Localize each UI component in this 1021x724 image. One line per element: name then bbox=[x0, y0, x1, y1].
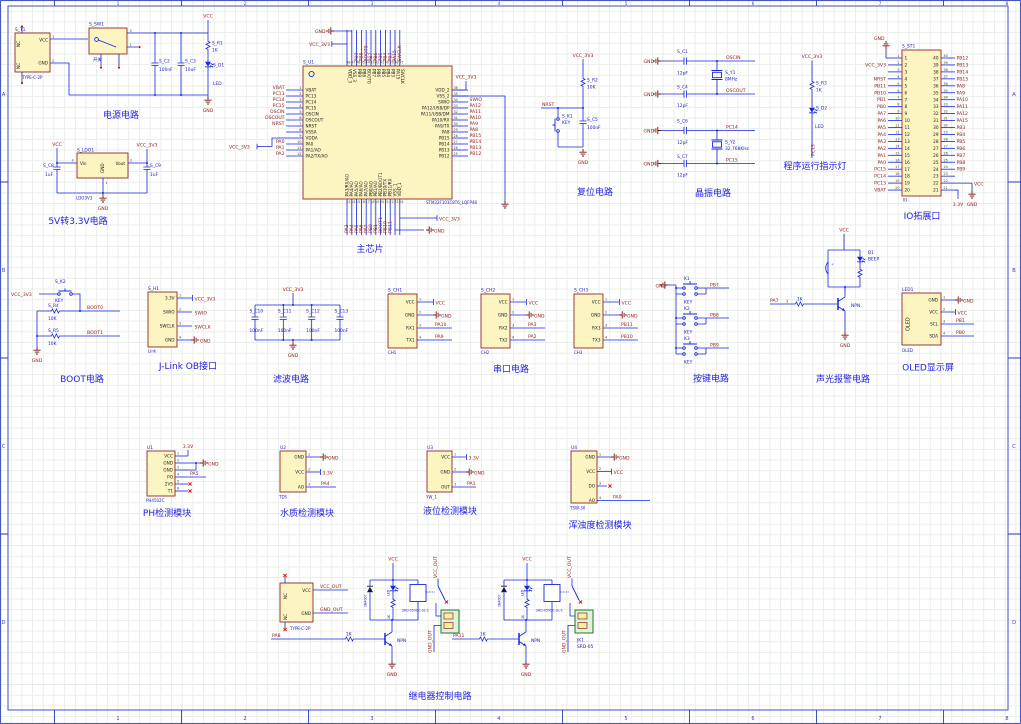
base-resistor[interactable] bbox=[794, 302, 805, 306]
crystal-row[interactable]: GND S_C1 12pF OSCIN S_Y1 8MHz GND S_C4 1… bbox=[643, 49, 755, 109]
gnd-symbol[interactable] bbox=[33, 347, 40, 354]
net-label[interactable]: OSCIN bbox=[726, 55, 741, 61]
vcc-flag[interactable]: VCC bbox=[839, 228, 849, 234]
circuit-title[interactable]: 继电器控制电路 bbox=[408, 690, 471, 702]
button-value[interactable]: KEY bbox=[684, 300, 693, 306]
resistor-designator[interactable]: S_R4 bbox=[48, 303, 59, 309]
header-right-pin[interactable]: 32 32 PA12 bbox=[933, 110, 968, 118]
led-value[interactable]: LED bbox=[521, 589, 525, 596]
capacitor-designator[interactable]: S_C9 bbox=[150, 163, 161, 169]
key-switch[interactable]: K3 KEY PB9 bbox=[675, 336, 729, 366]
net-label[interactable]: PA6 bbox=[877, 118, 886, 124]
led-designator[interactable]: S_D2 bbox=[816, 106, 827, 112]
capacitor-designator[interactable]: S_C12 bbox=[306, 309, 320, 315]
net-label[interactable]: PA8 bbox=[272, 633, 281, 639]
resistor-designator[interactable]: S_R1 bbox=[212, 41, 223, 47]
vcc-flag[interactable]: VCC bbox=[52, 142, 62, 148]
gnd-label[interactable]: GND bbox=[208, 461, 219, 467]
v33-flag[interactable]: 3.3V bbox=[183, 444, 194, 450]
net-label[interactable]: NRST bbox=[874, 76, 887, 82]
crystal-value[interactable]: 8MHz bbox=[725, 77, 738, 83]
gnd-label[interactable]: GND bbox=[32, 358, 43, 364]
led-resistor[interactable] bbox=[391, 598, 395, 609]
capacitor-designator[interactable]: S_C5 bbox=[587, 117, 598, 123]
gnd-label[interactable]: GND bbox=[967, 202, 978, 208]
capacitor-value[interactable]: 100nF bbox=[587, 125, 601, 131]
transistor-label[interactable]: NPN bbox=[397, 638, 406, 644]
gnd-symbol[interactable] bbox=[289, 342, 296, 349]
net-label[interactable]: PA1 bbox=[467, 481, 476, 487]
net-label[interactable]: PA4 bbox=[877, 132, 886, 138]
capacitor-designator[interactable]: S_C3 bbox=[185, 59, 196, 65]
net-label[interactable]: VCC_OUT bbox=[567, 556, 573, 578]
net-label[interactable]: PA9 bbox=[435, 334, 444, 340]
net-label[interactable]: PB4 bbox=[957, 132, 966, 138]
resistor-value[interactable]: 1K bbox=[387, 614, 391, 619]
connector-part[interactable]: CH3 bbox=[574, 350, 583, 355]
resistor-value[interactable]: 1K bbox=[797, 297, 803, 303]
button-designator[interactable]: K3 bbox=[684, 336, 690, 342]
vcc-flag[interactable]: VCC bbox=[529, 300, 539, 306]
resistor-value[interactable]: 10K bbox=[48, 341, 57, 347]
net-label[interactable]: PB0 bbox=[877, 104, 886, 110]
net-label[interactable]: PB8 bbox=[957, 160, 966, 166]
gnd-symbol[interactable] bbox=[99, 195, 106, 202]
base-resistor[interactable] bbox=[344, 637, 355, 641]
relay-part[interactable]: SRD-05VDC-SL-C bbox=[536, 609, 564, 613]
net-label[interactable]: SWIO bbox=[195, 310, 208, 316]
module-part[interactable]: TDS bbox=[278, 495, 288, 500]
net-label[interactable]: PC14 bbox=[874, 174, 886, 180]
header-right-pin[interactable]: 27 27 PB6 bbox=[933, 144, 965, 152]
net-label[interactable]: PB1 bbox=[877, 97, 886, 103]
alarm-led[interactable] bbox=[857, 255, 865, 264]
net-label[interactable]: PA10 bbox=[435, 322, 447, 328]
header-left-pin[interactable]: 20 20 VBAT bbox=[874, 186, 910, 194]
net-label[interactable]: PC13 bbox=[273, 91, 285, 97]
net-label[interactable]: PB11 bbox=[621, 322, 633, 328]
capacitor-designator[interactable]: S_C10 bbox=[250, 309, 264, 315]
serial-connector[interactable]: S_CH2 VCC GND RX2 TX2 1 2 3 4 VCC GND PA… bbox=[481, 288, 545, 356]
resistor-designator[interactable]: S_R2 bbox=[587, 78, 598, 84]
header-right-pin[interactable]: 23 23 bbox=[933, 172, 955, 179]
resistor-value[interactable]: 10K bbox=[48, 316, 57, 322]
gnd-symbol[interactable] bbox=[501, 201, 508, 208]
capacitor-c3[interactable] bbox=[177, 60, 184, 68]
module-pin[interactable]: 1 VCC bbox=[164, 452, 188, 459]
resistor-value[interactable]: 1K bbox=[346, 632, 352, 638]
net-label[interactable]: PB7 bbox=[710, 282, 719, 288]
mcu-designator[interactable]: S_U1 bbox=[303, 60, 314, 66]
circuit-title[interactable]: 滤波电路 bbox=[273, 373, 309, 385]
gnd-symbol[interactable] bbox=[654, 160, 661, 167]
capacitor-value[interactable]: 100nF bbox=[159, 67, 173, 73]
filter-cap[interactable]: S_C12 100nF bbox=[306, 305, 320, 340]
vcc3v3-flag[interactable]: VCC_3V3 bbox=[439, 216, 460, 222]
relay-coil[interactable] bbox=[544, 585, 560, 602]
header-right-pin[interactable]: 31 31 PA15 bbox=[933, 117, 968, 125]
header-left-pin[interactable]: 12 12 PA4 bbox=[877, 130, 910, 138]
gnd-symbol[interactable] bbox=[955, 296, 962, 303]
gnd-label[interactable]: GND bbox=[534, 313, 545, 319]
vcc-flag[interactable]: VCC bbox=[203, 14, 213, 20]
capacitor-symbol[interactable] bbox=[280, 314, 287, 322]
header-right-pin[interactable]: 36 36 PA8 bbox=[933, 82, 965, 90]
mcu-left-pin[interactable]: 9 VDDA bbox=[286, 134, 318, 141]
module-pin[interactable]: 6 T1 bbox=[167, 487, 188, 494]
net-label[interactable]: PB10 bbox=[874, 90, 886, 96]
vcc-flag[interactable]: VCC bbox=[614, 470, 624, 476]
net-label[interactable]: PC15 bbox=[273, 103, 285, 109]
connector-designator[interactable]: S_CH3 bbox=[574, 288, 588, 294]
button-value[interactable]: KEY bbox=[684, 360, 693, 366]
net-label[interactable]: PA10 bbox=[957, 97, 969, 103]
net-label[interactable]: PA5 bbox=[877, 125, 886, 131]
net-label[interactable]: SWCLK bbox=[195, 324, 212, 330]
gnd-label[interactable]: GND bbox=[643, 162, 654, 168]
buzzer-designator[interactable]: B1 bbox=[868, 250, 874, 256]
v33-flag[interactable]: 3.3V bbox=[323, 470, 334, 476]
button-value[interactable]: KEY bbox=[562, 120, 571, 126]
capacitor-value[interactable]: 1uF bbox=[150, 172, 159, 178]
net-label[interactable]: PB9 bbox=[957, 167, 966, 173]
module-designator[interactable]: U3 bbox=[427, 445, 433, 451]
net-label[interactable]: PC15 bbox=[874, 167, 886, 173]
header-right-pin[interactable]: 26 26 PB7 bbox=[933, 151, 965, 159]
header-right-pin[interactable]: 34 34 PA10 bbox=[933, 96, 968, 104]
net-label[interactable]: BOOT1 bbox=[87, 330, 103, 336]
net-label[interactable]: GND_OUT bbox=[320, 607, 343, 613]
net-label[interactable]: NRST bbox=[272, 121, 285, 127]
net-label[interactable]: PA0 bbox=[877, 160, 886, 166]
button-designator[interactable]: K2 bbox=[684, 306, 690, 312]
header-left-pin[interactable]: 18 18 PC14 bbox=[874, 172, 910, 180]
net-label[interactable]: SWIO bbox=[470, 97, 483, 103]
led-designator[interactable]: S_D1 bbox=[213, 63, 224, 69]
vcc-flag[interactable]: VCC bbox=[622, 300, 632, 306]
wire[interactable] bbox=[955, 190, 958, 199]
net-label[interactable]: PA8 bbox=[470, 127, 479, 133]
gnd-label[interactable]: GND bbox=[619, 455, 630, 461]
net-label[interactable]: PC15 bbox=[726, 157, 738, 163]
transistor-label[interactable]: NPN bbox=[851, 303, 860, 309]
mcu-part[interactable]: STM32F103C8T6_LQFP48 bbox=[426, 200, 477, 205]
resistor-value[interactable]: 1K bbox=[480, 632, 486, 638]
key-switch[interactable]: K1 KEY PB7 bbox=[675, 276, 729, 306]
header-left-pin[interactable]: 13 13 PA3 bbox=[877, 137, 910, 145]
gnd-label[interactable]: GND bbox=[288, 353, 299, 359]
net-label[interactable]: VBAT bbox=[273, 85, 285, 91]
gnd-label[interactable]: GND bbox=[434, 228, 445, 234]
capacitor-value[interactable]: 100nF bbox=[334, 328, 348, 334]
header-right-pin[interactable]: 24 24 PB9 bbox=[933, 165, 965, 173]
resistor-r4[interactable] bbox=[50, 309, 61, 313]
header-right-pin[interactable]: 35 35 PA9 bbox=[933, 89, 965, 97]
v33-flag[interactable]: 3.3V bbox=[469, 455, 480, 461]
resistor-r2[interactable] bbox=[581, 77, 585, 88]
capacitor-value[interactable]: 100nF bbox=[250, 328, 264, 334]
connector-designator[interactable]: S_CH1 bbox=[388, 288, 402, 294]
circuit-title[interactable]: 按键电路 bbox=[693, 373, 729, 385]
net-label[interactable]: PA2 bbox=[528, 334, 537, 340]
wire[interactable] bbox=[50, 39, 88, 95]
gnd-symbol[interactable] bbox=[522, 661, 529, 668]
wire[interactable] bbox=[886, 49, 888, 58]
connector-designator[interactable]: S_T1 bbox=[15, 27, 26, 33]
gnd-label[interactable]: GND bbox=[387, 672, 398, 678]
terminal-designator[interactable]: JK1 bbox=[576, 638, 584, 644]
gnd-symbol[interactable] bbox=[327, 27, 334, 34]
button-designator[interactable]: S_K2 bbox=[55, 279, 66, 285]
capacitor-value[interactable]: 10uF bbox=[185, 67, 196, 73]
connector-part[interactable]: Link bbox=[148, 349, 157, 354]
buzzer-icon[interactable] bbox=[826, 262, 828, 274]
gnd-label[interactable]: GND bbox=[474, 470, 485, 476]
header-right-pin[interactable]: 33 33 PA11 bbox=[933, 103, 968, 111]
pushbutton-k1[interactable] bbox=[553, 118, 560, 133]
net-label[interactable]: PB8 bbox=[710, 312, 719, 318]
net-label[interactable]: PB12 bbox=[957, 56, 969, 62]
gnd-symbol[interactable] bbox=[204, 97, 211, 104]
resistor-designator[interactable]: S_R5 bbox=[48, 328, 59, 334]
resistor-r3[interactable] bbox=[810, 80, 814, 91]
connector-part[interactable]: TYPE-C-2P bbox=[21, 75, 43, 80]
gnd-symbol[interactable] bbox=[191, 336, 198, 343]
net-label[interactable]: PB12 bbox=[470, 151, 482, 157]
net-label[interactable]: VCC_OUT bbox=[433, 556, 439, 578]
net-label[interactable]: PA2 bbox=[877, 146, 886, 152]
net-label[interactable]: PA0 bbox=[276, 139, 285, 145]
pushbutton-k2[interactable] bbox=[58, 289, 73, 296]
led-value[interactable]: LED bbox=[213, 81, 222, 87]
module-pin[interactable]: 2 GND bbox=[163, 459, 188, 466]
vcc-flag[interactable]: VCC bbox=[958, 310, 968, 316]
capacitor-designator[interactable]: S_C13 bbox=[334, 309, 348, 315]
filter-cap[interactable]: S_C13 100nF bbox=[334, 305, 348, 340]
capacitor-c8[interactable] bbox=[53, 164, 60, 172]
gnd-label[interactable]: GND bbox=[578, 160, 589, 166]
capacitor-value[interactable]: 1uF bbox=[45, 172, 54, 178]
npn-transistor[interactable] bbox=[838, 297, 845, 311]
circuit-title[interactable]: 声光报警电路 bbox=[816, 373, 870, 385]
net-label[interactable]: PA12 bbox=[470, 103, 482, 109]
capacitor-c2[interactable] bbox=[151, 60, 158, 68]
capacitor-designator[interactable]: S_C1 bbox=[677, 49, 688, 55]
gnd-label[interactable]: GND bbox=[521, 672, 532, 678]
gnd-symbol[interactable] bbox=[433, 311, 440, 318]
net-label[interactable]: PA4 bbox=[321, 481, 330, 487]
switch-designator[interactable]: S_SW1 bbox=[89, 22, 104, 28]
diode-value[interactable]: 1N4007 bbox=[498, 594, 502, 607]
header-right-pin[interactable]: 39 39 PB13 bbox=[933, 61, 968, 68]
connector-designator[interactable]: S_CH2 bbox=[481, 288, 495, 294]
header-right-pin[interactable]: 30 30 PB3 bbox=[933, 124, 965, 132]
capacitor-c5[interactable] bbox=[579, 118, 586, 126]
capacitor-value[interactable]: 12pF bbox=[677, 71, 688, 77]
circuit-title[interactable]: 液位检测模块 bbox=[423, 505, 477, 517]
gnd-symbol[interactable] bbox=[579, 149, 586, 156]
net-label[interactable]: NRST bbox=[542, 102, 555, 108]
net-label[interactable]: PB13 bbox=[957, 62, 969, 68]
header-left-pin[interactable]: 3 3 bbox=[888, 68, 908, 75]
gnd-symbol[interactable] bbox=[466, 468, 473, 475]
header-left-pin[interactable]: 19 19 PC13 bbox=[874, 179, 910, 187]
gnd-label[interactable]: GND bbox=[963, 298, 974, 304]
led-value[interactable]: LED bbox=[387, 589, 391, 596]
gnd-label[interactable]: GND bbox=[840, 343, 851, 349]
net-label[interactable]: PA10 bbox=[470, 115, 482, 121]
v33-flag[interactable]: 3.3V bbox=[953, 202, 964, 208]
vcc3v3-flag[interactable]: VCC_3V3 bbox=[283, 287, 304, 293]
net-label[interactable]: PB1 bbox=[956, 318, 965, 324]
net-label[interactable]: PC14 bbox=[726, 124, 738, 130]
led-resistor[interactable] bbox=[858, 268, 862, 279]
net-label[interactable]: BOOT0 bbox=[87, 305, 103, 311]
capacitor-value[interactable]: 100nF bbox=[306, 328, 320, 334]
net-label[interactable]: PA11 bbox=[453, 633, 465, 639]
filter-cap[interactable]: S_C10 100nF bbox=[250, 305, 264, 340]
net-label[interactable]: PC13 bbox=[874, 181, 886, 187]
display-designator[interactable]: LED1 bbox=[902, 287, 914, 293]
circuit-title[interactable]: 复位电路 bbox=[577, 186, 613, 198]
gnd-symbol[interactable] bbox=[200, 459, 207, 466]
circuit-title[interactable]: 浑浊度检测模块 bbox=[568, 519, 631, 531]
header-right-pin[interactable]: 21 21 bbox=[933, 186, 955, 193]
connector-part[interactable]: TYPE-C-2P bbox=[289, 626, 311, 631]
gnd-symbol[interactable] bbox=[968, 191, 975, 198]
module-pin[interactable]: 3 GND bbox=[163, 466, 188, 473]
vcc-flag[interactable]: VCC bbox=[522, 557, 532, 563]
net-label[interactable]: PB15 bbox=[470, 133, 482, 139]
net-label[interactable]: PB14 bbox=[957, 69, 969, 75]
capacitor-designator[interactable]: S_C7 bbox=[677, 154, 688, 160]
capacitor-designator[interactable]: S_C11 bbox=[278, 309, 292, 315]
circuit-title[interactable]: 电源电路 bbox=[103, 109, 139, 121]
npn-transistor[interactable] bbox=[385, 632, 392, 646]
net-label[interactable]: PB5 bbox=[957, 139, 966, 145]
net-label[interactable]: PA7 bbox=[770, 298, 779, 304]
vcc-flag[interactable]: VCC bbox=[974, 181, 984, 187]
net-label[interactable]: PA8 bbox=[957, 83, 966, 89]
net-label[interactable]: PA11 bbox=[957, 104, 969, 110]
crystal-designator[interactable]: S_Y1 bbox=[725, 70, 736, 76]
resistor-value[interactable]: 1K bbox=[521, 614, 525, 619]
gnd-label[interactable]: GND bbox=[643, 92, 654, 98]
display-part[interactable]: OLED bbox=[902, 348, 913, 353]
crystal-body[interactable] bbox=[713, 72, 722, 77]
net-label[interactable]: PA1 bbox=[276, 145, 285, 151]
header-left-pin[interactable]: 1 1 bbox=[888, 54, 908, 61]
header-part[interactable]: IO bbox=[903, 198, 907, 203]
net-label[interactable]: PB13 bbox=[470, 145, 482, 151]
buzzer-value[interactable]: BEEP bbox=[868, 257, 880, 263]
resistor-value[interactable]: 1K bbox=[212, 48, 218, 54]
net-label[interactable]: PB11 bbox=[874, 83, 886, 89]
serial-connector[interactable]: S_CH3 VCC GND RX3 TX3 1 2 3 4 VCC GND PB… bbox=[574, 288, 638, 356]
net-label[interactable]: PB9 bbox=[710, 342, 719, 348]
module-pin[interactable]: 4 PO bbox=[167, 473, 188, 480]
connector-designator[interactable]: S_H1 bbox=[148, 286, 159, 292]
vcc3v3-flag[interactable]: VCC_3V3 bbox=[195, 296, 216, 302]
crystal-value[interactable]: 32.768KHz bbox=[725, 146, 750, 152]
gnd-symbol[interactable] bbox=[388, 661, 395, 668]
circuit-title[interactable]: 水质检测模块 bbox=[280, 507, 334, 519]
header-left-pin[interactable]: 17 17 PC15 bbox=[874, 165, 910, 173]
gnd-symbol[interactable] bbox=[841, 332, 848, 339]
header-left-pin[interactable]: 16 16 PA0 bbox=[877, 158, 910, 166]
capacitor-symbol[interactable] bbox=[336, 314, 343, 322]
resistor-value[interactable]: 10K bbox=[587, 85, 596, 91]
crystal-row[interactable]: GND S_C6 12pF PC14 S_Y2 32.768KHz GND S_… bbox=[643, 119, 755, 179]
net-label[interactable]: PA1 bbox=[877, 153, 886, 159]
button-designator[interactable]: S_K1 bbox=[562, 114, 573, 120]
gnd-label[interactable]: GND bbox=[315, 29, 326, 35]
net-label[interactable]: SWCLK bbox=[397, 44, 403, 61]
module-designator[interactable]: U2 bbox=[280, 445, 286, 451]
net-label[interactable]: PB3 bbox=[957, 125, 966, 131]
header-left-pin[interactable]: 11 11 PA5 bbox=[877, 124, 910, 132]
diode-value[interactable]: 1N4007 bbox=[364, 594, 368, 607]
net-label[interactable]: PB14 bbox=[470, 139, 482, 145]
connector-part[interactable]: CH2 bbox=[481, 350, 490, 355]
gnd-symbol[interactable] bbox=[526, 311, 533, 318]
vcc3v3-flag[interactable]: VCC_3V3 bbox=[456, 75, 477, 81]
led-value[interactable]: LED bbox=[815, 124, 824, 130]
header-right-pin[interactable]: 25 25 PB8 bbox=[933, 158, 965, 166]
capacitor-symbol[interactable] bbox=[681, 90, 689, 97]
net-label[interactable]: PB11 bbox=[387, 221, 393, 233]
circuit-title[interactable]: BOOT电路 bbox=[60, 373, 104, 385]
net-label[interactable]: PA5 bbox=[190, 471, 199, 477]
net-label[interactable]: PB6 bbox=[957, 146, 966, 152]
module-part[interactable]: PH4502C bbox=[146, 498, 165, 503]
net-label[interactable]: PA2 bbox=[276, 151, 285, 157]
crystal-designator[interactable]: S_Y2 bbox=[725, 140, 736, 146]
vcc-flag[interactable]: VCC bbox=[436, 300, 446, 306]
capacitor-symbol[interactable] bbox=[681, 160, 689, 167]
relay-unit-2[interactable]: VCC 1N4007 LED 1K SRD-05VDC-SL-C NPN GND… bbox=[498, 556, 594, 678]
capacitor-designator[interactable]: S_C6 bbox=[677, 119, 688, 125]
gnd-symbol[interactable] bbox=[611, 453, 618, 460]
capacitor-value[interactable]: 12pF bbox=[677, 140, 688, 146]
net-label[interactable]: PB7 bbox=[957, 153, 966, 159]
relay-coil[interactable] bbox=[410, 585, 426, 602]
net-label[interactable]: PA11 bbox=[470, 109, 482, 115]
gnd-label[interactable]: GND bbox=[98, 206, 109, 212]
transistor-label[interactable]: NPN bbox=[531, 638, 540, 644]
gnd-symbol[interactable] bbox=[619, 311, 626, 318]
net-label[interactable]: GND_OUT bbox=[428, 630, 434, 653]
module-pin[interactable]: 5 2V5 bbox=[165, 480, 188, 487]
wire[interactable] bbox=[332, 41, 347, 47]
capacitor-designator[interactable]: S_C4 bbox=[677, 85, 688, 91]
circuit-title[interactable]: OLED显示屏 bbox=[902, 363, 954, 374]
header-right-pin[interactable]: 40 40 PB12 bbox=[933, 54, 968, 62]
net-label[interactable]: PA12 bbox=[957, 111, 969, 117]
module-part[interactable]: YW_1 bbox=[425, 495, 437, 500]
circuit-title[interactable]: 程序运行指示灯 bbox=[783, 160, 846, 172]
vcc-flag[interactable]: VCC bbox=[388, 557, 398, 563]
resistor-r5[interactable] bbox=[50, 334, 61, 338]
module-designator[interactable]: U4 bbox=[571, 445, 577, 451]
gnd-symbol[interactable] bbox=[426, 226, 433, 233]
gnd-label[interactable]: GND bbox=[203, 108, 214, 114]
connector-part[interactable]: CH1 bbox=[388, 350, 397, 355]
vcc3v3-flag[interactable]: VCC_3V3 bbox=[309, 42, 330, 48]
net-label[interactable]: VBAT bbox=[874, 188, 886, 194]
header-right-pin[interactable]: 37 37 PB15 bbox=[933, 75, 968, 83]
serial-connector[interactable]: S_CH1 VCC GND RX1 TX1 1 2 3 4 VCC GND PA… bbox=[388, 288, 452, 356]
